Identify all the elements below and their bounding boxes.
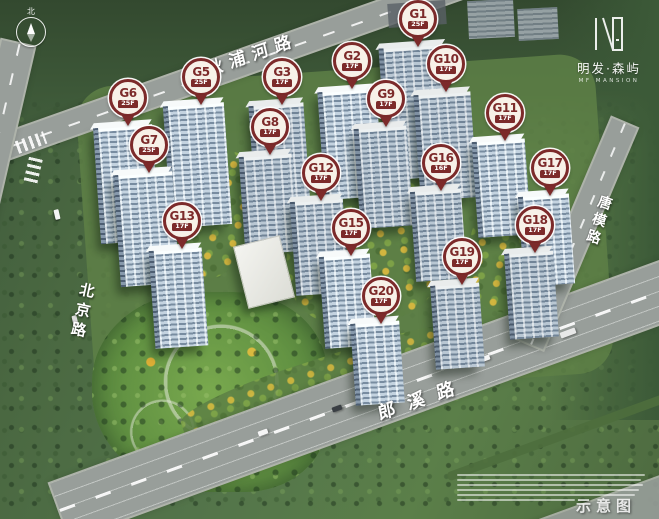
building-floors-label: 16F (431, 165, 451, 173)
building-id-label: G19 (449, 246, 474, 258)
pin-circle: G11 17F (486, 94, 524, 132)
compass: 北 (14, 8, 48, 47)
pin-circle: G16 16F (422, 144, 460, 182)
pin-tail-icon (346, 79, 358, 89)
brand-logo-icon (592, 14, 626, 54)
building-floors-label: 17F (540, 170, 560, 178)
building-floors-label: 17F (436, 66, 456, 74)
pin-circle: G8 17F (251, 108, 289, 146)
pin-circle: G2 17F (333, 42, 371, 80)
building-id-label: G18 (522, 214, 547, 226)
building-id-label: G1 (409, 8, 426, 20)
pin-tail-icon (456, 275, 468, 285)
building-pin-g17[interactable]: G17 17F (531, 149, 569, 196)
building-floors-label: 17F (525, 227, 545, 235)
pin-tail-icon (195, 95, 207, 105)
pin-tail-icon (529, 243, 541, 253)
building-pin-g1[interactable]: G1 25F (399, 0, 437, 47)
compass-north-label: 北 (14, 8, 48, 16)
building-floors-label: 17F (260, 129, 280, 137)
pin-tail-icon (544, 186, 556, 196)
building-id-label: G16 (428, 152, 453, 164)
watermark-text: 示意图 (576, 495, 636, 516)
building-floors-label: 17F (342, 63, 362, 71)
pin-circle: G15 17F (332, 209, 370, 247)
pin-tail-icon (176, 239, 188, 249)
pin-circle: G7 25F (130, 126, 168, 164)
building-id-label: G12 (308, 162, 333, 174)
compass-icon (16, 17, 46, 47)
brand-name: 明发·森屿 (565, 58, 653, 77)
building-floors-label: 25F (139, 147, 159, 155)
pin-tail-icon (345, 246, 357, 256)
building-pin-g19[interactable]: G19 17F (443, 238, 481, 285)
pin-circle: G17 17F (531, 149, 569, 187)
pin-circle: G9 17F (367, 80, 405, 118)
building-pin-g18[interactable]: G18 17F (516, 206, 554, 253)
building-pin-g15[interactable]: G15 17F (332, 209, 370, 256)
building-pin-g16[interactable]: G16 16F (422, 144, 460, 191)
building-floors-label: 17F (272, 79, 292, 87)
building-pin-g11[interactable]: G11 17F (486, 94, 524, 141)
building-pin-g2[interactable]: G2 17F (333, 42, 371, 89)
building-pin-g20[interactable]: G20 17F (362, 277, 400, 324)
building-pin-g5[interactable]: G5 25F (182, 58, 220, 105)
building-id-label: G7 (140, 134, 157, 146)
building-id-label: G15 (338, 217, 363, 229)
building-id-label: G11 (492, 102, 517, 114)
pin-circle: G13 17F (163, 202, 201, 240)
pin-tail-icon (380, 117, 392, 127)
building-id-label: G9 (377, 88, 394, 100)
building-id-label: G17 (537, 157, 562, 169)
building-pin-g6[interactable]: G6 25F (109, 79, 147, 126)
pin-circle: G19 17F (443, 238, 481, 276)
pin-circle: G1 25F (399, 0, 437, 38)
pin-circle: G5 25F (182, 58, 220, 96)
pin-circle: G20 17F (362, 277, 400, 315)
building-id-label: G20 (368, 285, 393, 297)
building-pin-g10[interactable]: G10 17F (427, 45, 465, 92)
pin-tail-icon (412, 37, 424, 47)
pin-tail-icon (440, 82, 452, 92)
building-id-label: G2 (343, 50, 360, 62)
pin-tail-icon (315, 191, 327, 201)
building-id-label: G5 (192, 66, 209, 78)
pin-circle: G18 17F (516, 206, 554, 244)
pin-tail-icon (122, 116, 134, 126)
building-pin-g3[interactable]: G3 17F (263, 58, 301, 105)
building-id-label: G13 (169, 210, 194, 222)
building-pin-g13[interactable]: G13 17F (163, 202, 201, 249)
pin-tail-icon (499, 131, 511, 141)
pin-tail-icon (276, 95, 288, 105)
pin-circle: G3 17F (263, 58, 301, 96)
building-floors-label: 17F (371, 298, 391, 306)
brand-tagline: MF MANSION (565, 78, 653, 84)
building-floors-label: 17F (495, 115, 515, 123)
building-floors-label: 25F (118, 100, 138, 108)
pin-tail-icon (375, 314, 387, 324)
pins-layer: G1 25F G2 17F G10 17F G5 25F G3 17F G6 2… (0, 0, 659, 519)
building-id-label: G10 (433, 53, 458, 65)
building-floors-label: 25F (191, 79, 211, 87)
building-id-label: G3 (273, 66, 290, 78)
brand-logo: 明发·森屿 MF MANSION (565, 14, 653, 84)
building-pin-g12[interactable]: G12 17F (302, 154, 340, 201)
pin-tail-icon (143, 163, 155, 173)
pin-tail-icon (264, 145, 276, 155)
aerial-site-plan: 秋浦河路 北京路 郎溪路 唐模路 G1 25F G2 17F G10 17F G… (0, 0, 659, 519)
building-pin-g7[interactable]: G7 25F (130, 126, 168, 173)
building-floors-label: 17F (341, 230, 361, 238)
building-floors-label: 25F (408, 21, 428, 29)
building-id-label: G6 (119, 87, 136, 99)
pin-circle: G6 25F (109, 79, 147, 117)
building-floors-label: 17F (452, 259, 472, 267)
pin-tail-icon (435, 181, 447, 191)
building-id-label: G8 (261, 116, 278, 128)
building-floors-label: 17F (172, 223, 192, 231)
pin-circle: G12 17F (302, 154, 340, 192)
building-floors-label: 17F (311, 175, 331, 183)
building-pin-g8[interactable]: G8 17F (251, 108, 289, 155)
building-floors-label: 17F (376, 101, 396, 109)
building-pin-g9[interactable]: G9 17F (367, 80, 405, 127)
pin-circle: G10 17F (427, 45, 465, 83)
